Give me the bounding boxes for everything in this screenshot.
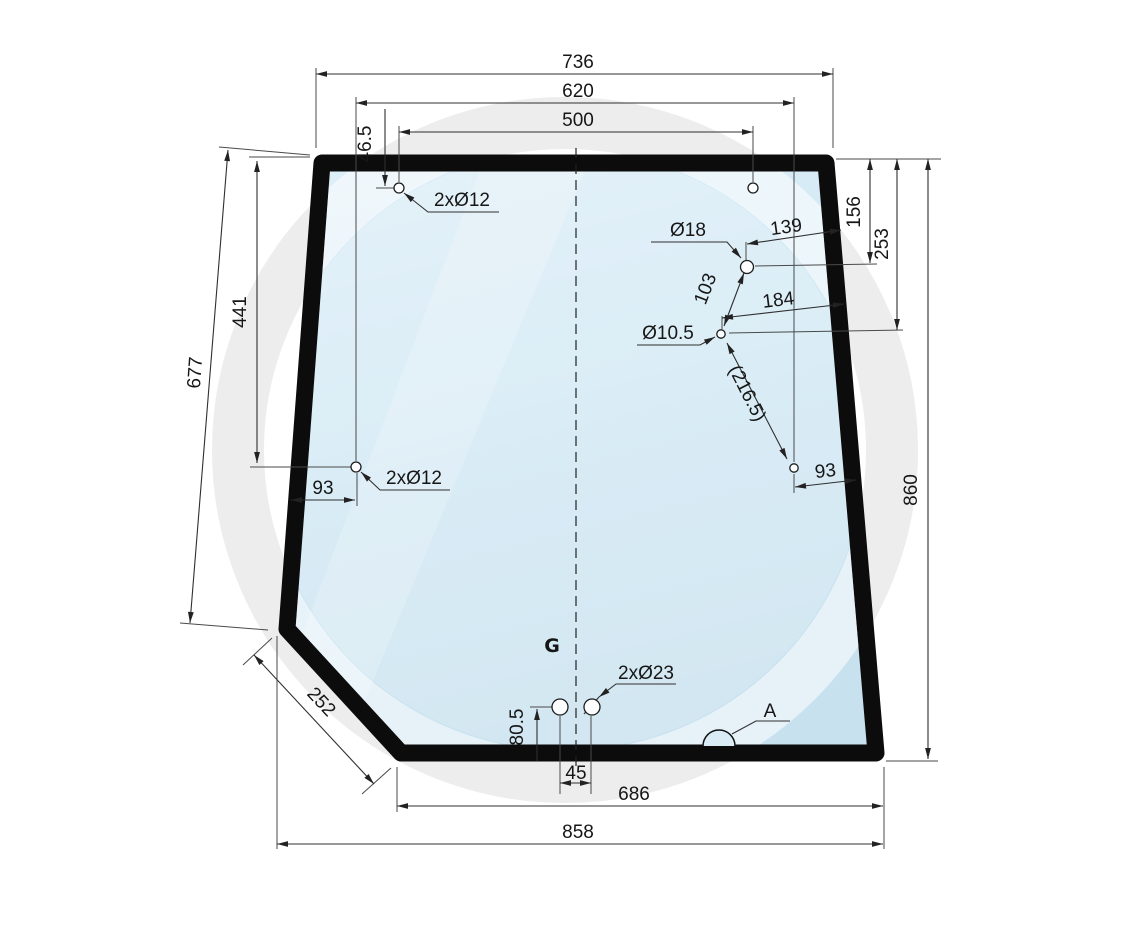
- dim-lower-hole-edge-label: 184: [761, 288, 795, 313]
- notch-label: A: [764, 701, 777, 722]
- dim-left-hole-top-label: 441: [230, 296, 251, 328]
- dim-left-hole-edge-label: 93: [312, 478, 333, 499]
- dim-side-hole-edge-label: 139: [769, 215, 803, 240]
- hole-right-lower: [790, 464, 798, 472]
- dim-bottom-holes-gap-label: 45: [565, 763, 586, 784]
- dim-top-width-label: 736: [562, 52, 594, 73]
- dim-right-hole-edge-label: 93: [814, 460, 837, 483]
- technical-drawing: G G: [0, 0, 1135, 947]
- dim-side-hole-top-label: 156: [844, 196, 865, 228]
- bottom-holes-label: 2xØ23: [618, 663, 674, 684]
- dim-left-edge-length-label: 677: [184, 356, 207, 389]
- top-holes-label: 2xØ12: [434, 190, 490, 211]
- hole-right-upper: [741, 261, 754, 274]
- watermark-letter-inner: G: [544, 635, 560, 657]
- side-hole-dia-label: Ø18: [670, 220, 706, 241]
- dim-bottom-inner-width-label: 686: [618, 784, 650, 805]
- hole-bottom-right: [584, 699, 600, 715]
- dim-bottom-holes-offset-label: 80.5: [507, 709, 528, 746]
- hole-bottom-left: [552, 699, 568, 715]
- dim-bottom-outer-width-label: 858: [562, 822, 594, 843]
- hole-top-left: [394, 183, 404, 193]
- left-holes-label: 2xØ12: [386, 468, 442, 489]
- hole-right-middle: [717, 330, 725, 338]
- dim-side-holes-span-label: 620: [562, 81, 594, 102]
- dim-top-hole-offset-label: 46.5: [355, 126, 376, 163]
- hole-top-right: [748, 183, 758, 193]
- dim-right-height-label: 860: [901, 474, 922, 506]
- dim-lower-hole-top-label: 253: [872, 228, 893, 260]
- hole-left-middle: [351, 462, 361, 472]
- lower-hole-dia-label: Ø10.5: [642, 323, 694, 344]
- dim-top-holes-span-label: 500: [562, 110, 594, 131]
